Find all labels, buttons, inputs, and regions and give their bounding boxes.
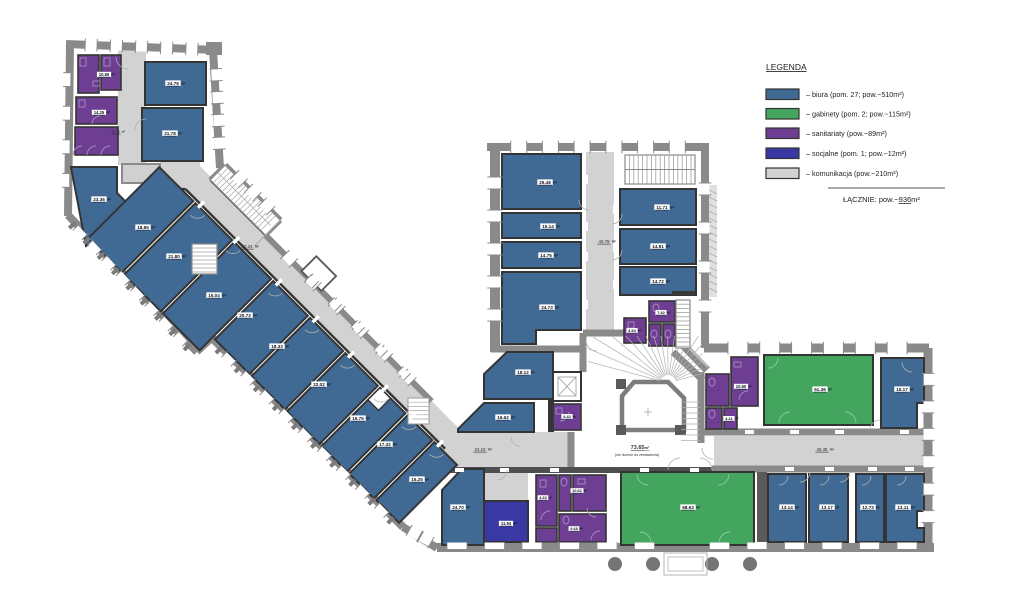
svg-text:17.32: 17.32 [379,442,391,447]
svg-text:(nie liczone do zestawienia): (nie liczone do zestawienia) [615,453,659,457]
svg-text:24.70: 24.70 [452,505,464,510]
svg-text:4.41: 4.41 [725,416,734,421]
svg-text:5.74: 5.74 [112,130,119,134]
svg-text:15.14: 15.14 [542,224,554,229]
svg-text:m²: m² [667,310,671,314]
svg-text:15.04: 15.04 [208,293,220,298]
svg-text:13.14: 13.14 [781,505,793,510]
svg-text:– socjalne (pom. 1; pow.~12m²): – socjalne (pom. 1; pow.~12m²) [806,149,906,158]
svg-text:– gabinety (pom. 2; pow.~115m²: – gabinety (pom. 2; pow.~115m²) [806,110,911,119]
svg-text:24.10: 24.10 [475,447,487,452]
svg-text:15.25: 15.25 [411,477,423,482]
svg-text:4.63: 4.63 [539,496,546,500]
svg-text:9.68: 9.68 [570,527,577,531]
svg-text:m²: m² [638,328,642,332]
svg-text:m²: m² [735,416,739,420]
svg-text:10.60: 10.60 [99,72,110,77]
svg-text:51.36: 51.36 [814,387,826,392]
svg-text:14.72: 14.72 [652,279,664,284]
svg-text:15.17: 15.17 [896,387,908,392]
svg-text:18.33: 18.33 [271,344,283,349]
svg-text:14.25: 14.25 [94,110,105,115]
svg-text:m²: m² [573,414,577,418]
svg-text:20.73: 20.73 [239,313,251,318]
svg-text:– komunikacja (pow.~210m²): – komunikacja (pow.~210m²) [806,169,898,178]
svg-text:23.36: 23.36 [93,197,105,202]
svg-text:21.80: 21.80 [168,254,180,259]
svg-text:18.85: 18.85 [137,225,149,230]
svg-text:m²: m² [584,488,587,492]
svg-text:m²: m² [580,526,583,530]
svg-text:11.71: 11.71 [656,205,668,210]
svg-text:4.54: 4.54 [628,328,637,333]
svg-text:45.35: 45.35 [817,447,829,452]
svg-text:12.73: 12.73 [862,505,874,510]
svg-text:m²: m² [111,72,115,76]
svg-text:18.12: 18.12 [517,370,529,375]
svg-text:16.75: 16.75 [352,416,364,421]
svg-text:14.91: 14.91 [652,244,664,249]
svg-text:24.79: 24.79 [167,81,179,86]
svg-text:– sanitariaty (pow.~89m²): – sanitariaty (pow.~89m²) [806,129,887,138]
svg-text:13.11: 13.11 [897,505,909,510]
svg-text:m²: m² [549,495,552,499]
svg-text:7.92: 7.92 [657,310,666,315]
svg-text:4.42: 4.42 [563,414,572,419]
svg-text:30.24: 30.24 [242,244,254,249]
svg-text:40.79: 40.79 [599,239,611,244]
svg-text:10.62: 10.62 [572,489,582,493]
svg-text:m²: m² [513,521,517,525]
svg-text:11.94: 11.94 [501,521,512,526]
svg-text:– biura (pom. 27; pow.~510m²): – biura (pom. 27; pow.~510m²) [806,90,904,99]
svg-text:LEGENDA: LEGENDA [766,62,807,72]
svg-text:m²: m² [106,110,110,114]
svg-text:10.60: 10.60 [736,384,747,389]
svg-text:68.63: 68.63 [682,505,694,510]
svg-text:ŁĄCZNIE: pow.~936m²: ŁĄCZNIE: pow.~936m² [843,195,920,204]
svg-text:22.02: 22.02 [313,382,325,387]
svg-text:14.75: 14.75 [540,253,552,258]
svg-text:m²: m² [748,384,752,388]
svg-text:m²: m² [122,129,125,133]
svg-text:25.48: 25.48 [539,180,551,185]
svg-text:21.78: 21.78 [164,131,176,136]
svg-text:24.73: 24.73 [541,305,553,310]
svg-text:16.62: 16.62 [497,415,509,420]
svg-text:13.17: 13.17 [821,505,833,510]
